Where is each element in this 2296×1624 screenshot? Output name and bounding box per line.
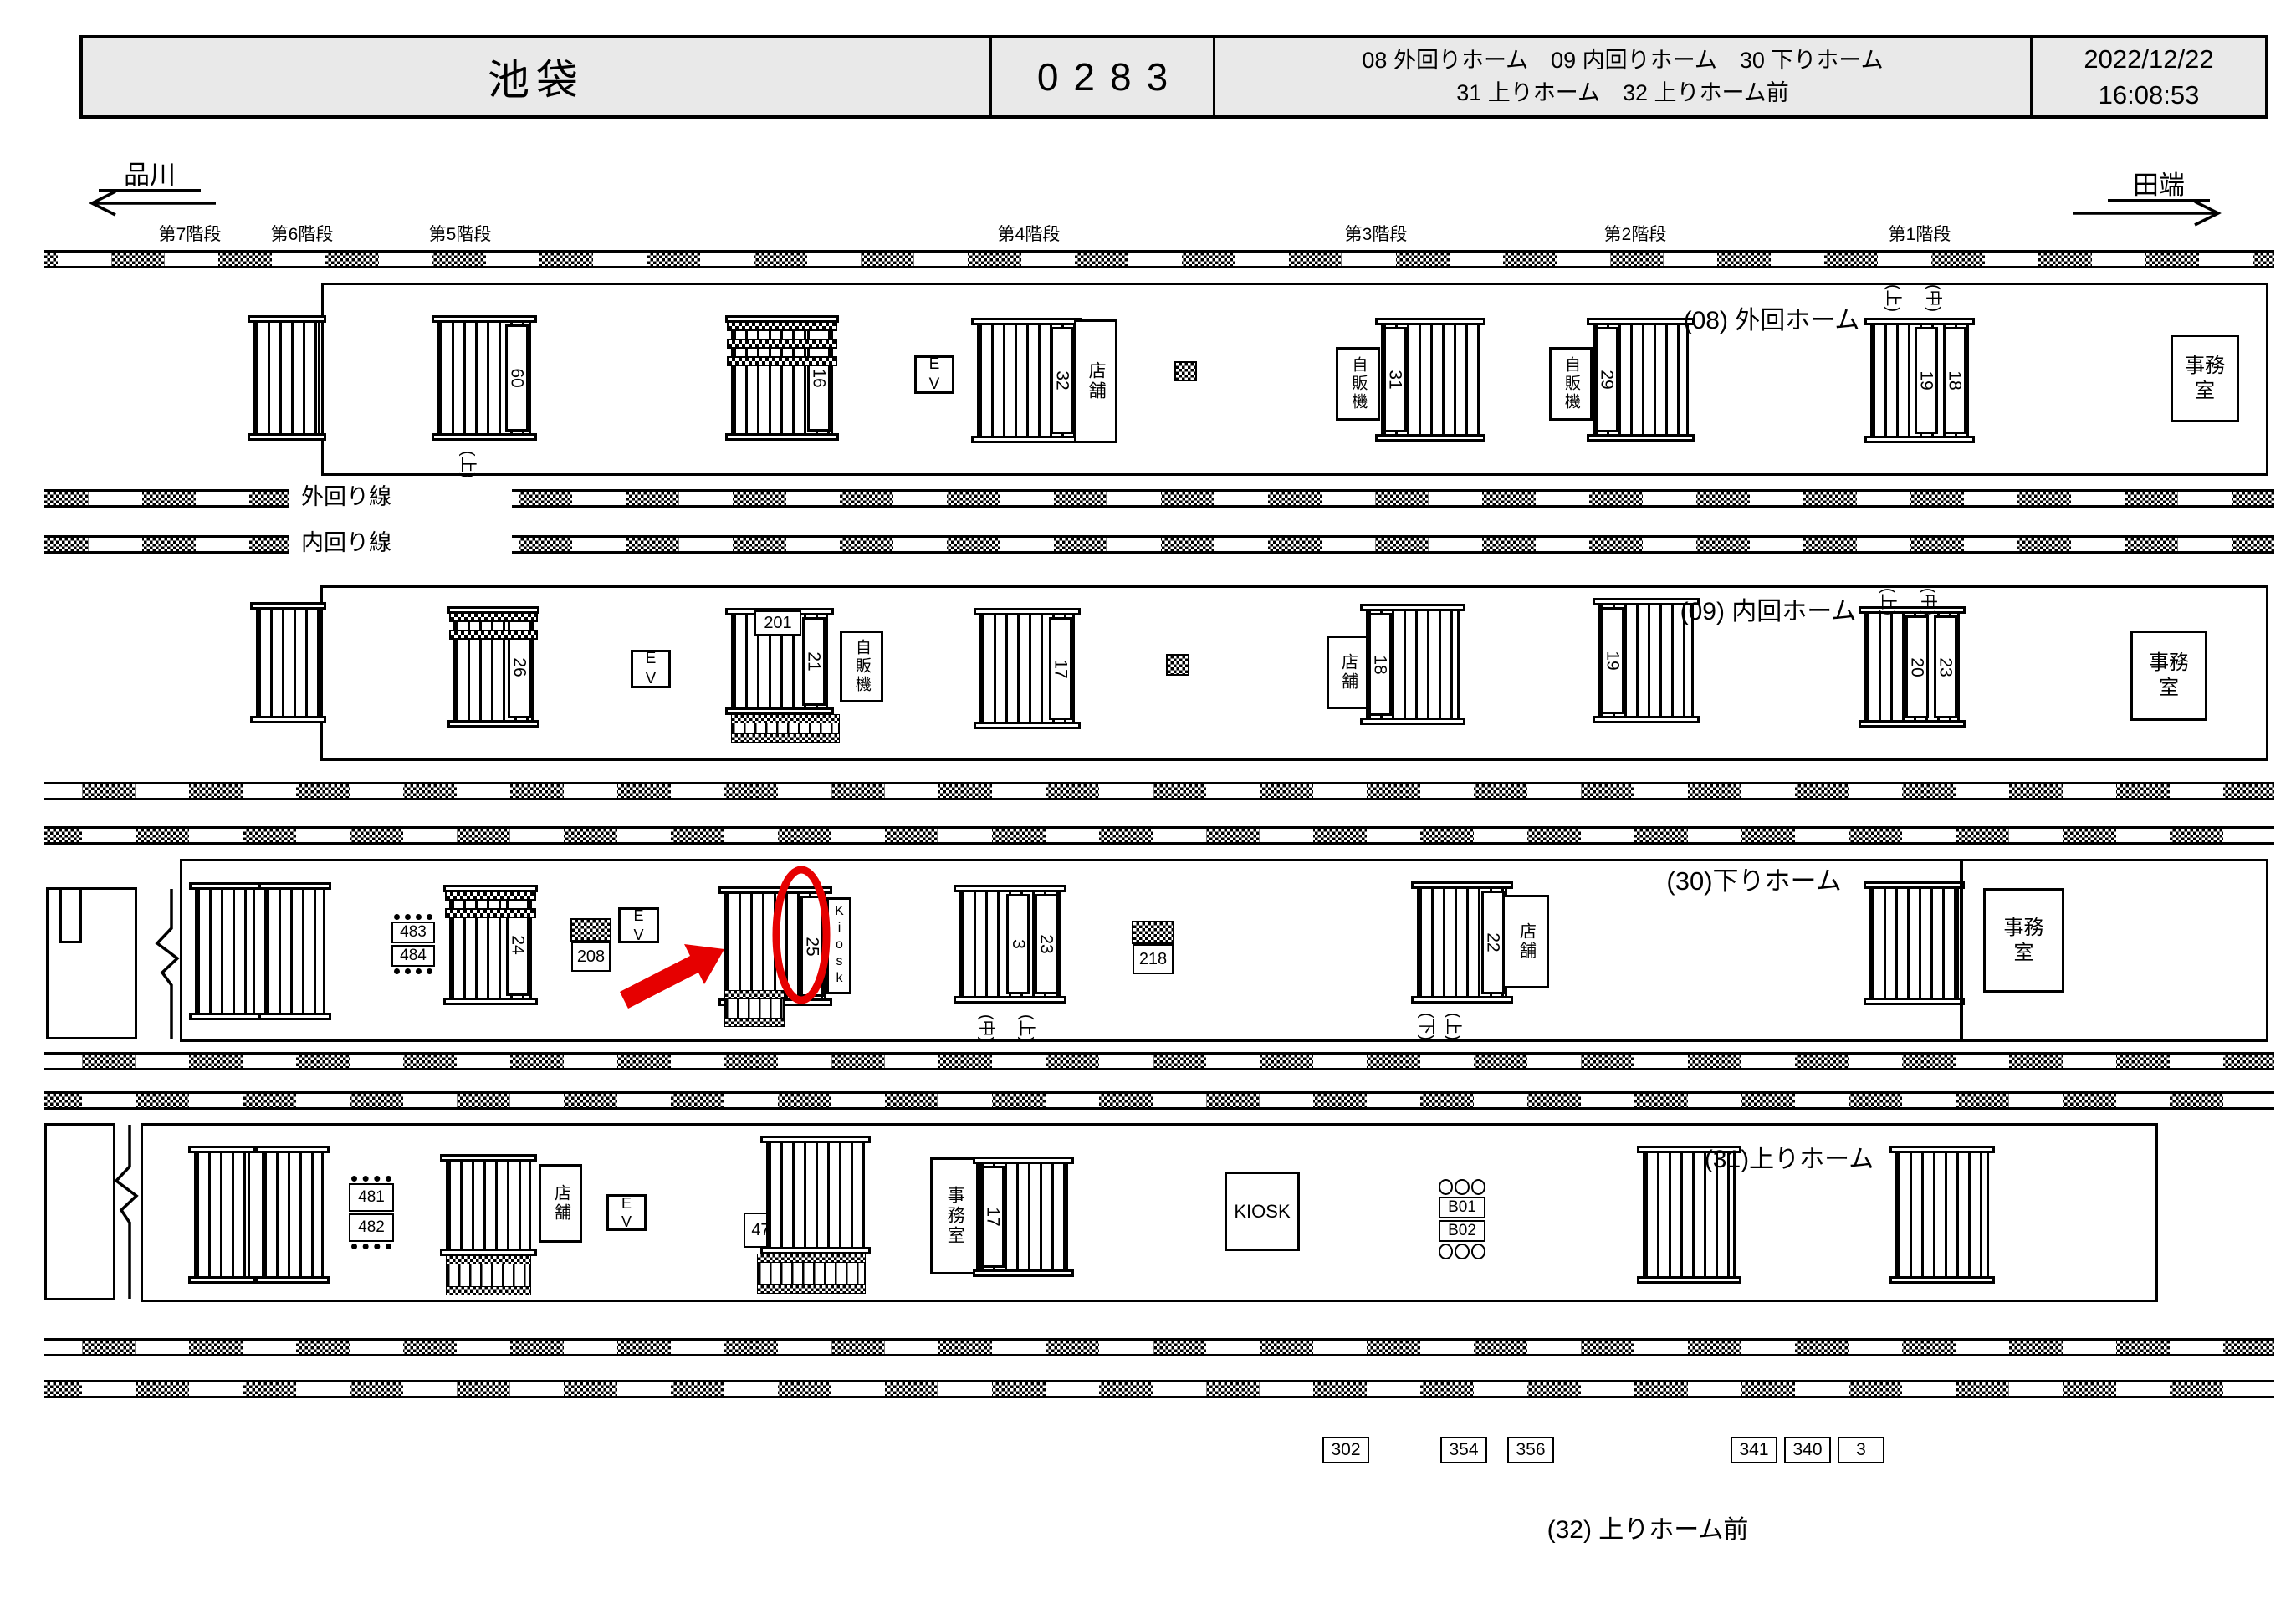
stair-number-lane: 23 — [1035, 894, 1058, 994]
escalator-up-tag: (上) — [1444, 1007, 1467, 1045]
stair-number-lane: 60 — [505, 324, 529, 432]
escalator-mid-tag: (中) — [1919, 583, 1942, 620]
track-segment — [44, 489, 289, 508]
staircase — [195, 882, 255, 1020]
staircase — [1895, 1146, 1989, 1284]
stair-number-lane: 19 — [1915, 327, 1938, 434]
escalator-up-tag: (上) — [1017, 1009, 1041, 1047]
stair-18: 18 — [1366, 604, 1460, 725]
direction-tabata: 田端 — [2108, 164, 2210, 202]
office: 事務室 — [2130, 631, 2207, 721]
direction-arrow-head — [92, 192, 115, 215]
rotated-tag-text: (下) — [1417, 1012, 1441, 1039]
escalator-dots — [757, 1254, 866, 1293]
track-segment — [44, 782, 2274, 800]
platform-09-label: (09) 内回ホーム — [1673, 590, 1864, 620]
escalator-strip — [445, 891, 536, 901]
stair-number: 18 — [1370, 655, 1390, 674]
stair-number-lane: 29 — [1595, 327, 1618, 432]
stair-number: 24 — [508, 935, 528, 954]
station-code: 0283 — [992, 38, 1215, 115]
station-name: 池袋 — [83, 38, 992, 115]
section-divider — [1960, 859, 1963, 1042]
track-line-label: 内回り線 — [301, 524, 427, 553]
track-segment — [512, 535, 2274, 554]
rotated-tag-text: (上) — [458, 450, 483, 477]
platform-31-label: (31)上りホーム — [1698, 1138, 1880, 1168]
scallop-dots — [394, 914, 432, 920]
stair-60: 60 — [437, 315, 531, 441]
stair-number: 31 — [1385, 370, 1405, 389]
stair-number-lane: 21 — [802, 617, 826, 706]
stair-3-23: 323 — [959, 885, 1061, 1004]
hatch-block — [570, 918, 611, 942]
platform-31-annex — [44, 1123, 115, 1300]
stair-number: 26 — [509, 657, 529, 677]
stair-number: 60 — [507, 368, 527, 387]
stair-22: 22 — [1417, 881, 1507, 1004]
stair-17: 17 — [979, 1157, 1068, 1277]
badge-number: 208 — [571, 942, 611, 972]
staircase — [264, 882, 325, 1020]
stair-number: 3 — [1008, 939, 1028, 949]
shop: 店舗 — [539, 1164, 582, 1243]
elevator: EV — [914, 355, 954, 394]
platform-break-zigzag — [116, 1125, 136, 1299]
shop: 店舗 — [1327, 636, 1368, 709]
time-value: 16:08:53 — [2099, 77, 2200, 113]
platform-32-label: (32) 上りホーム前 — [1531, 1509, 1765, 1539]
track-segment — [44, 1091, 2274, 1110]
scallop-dots — [351, 1176, 391, 1182]
escalator-dots — [724, 991, 785, 1026]
stair-number-lane: 22 — [1481, 891, 1505, 994]
stair-number-lane: 23 — [1934, 615, 1957, 718]
stair-number: 29 — [1597, 370, 1617, 389]
stair-number: 25 — [802, 937, 822, 956]
track-segment — [44, 1338, 2274, 1356]
stair-number-lane: 17 — [981, 1166, 1005, 1268]
stair-column-label: 第5階段 — [401, 221, 519, 246]
stair-number-lane: 32 — [1051, 327, 1074, 434]
escalator-strip — [727, 356, 837, 366]
escalator-strip — [445, 908, 536, 918]
escalator-up-tag: (上) — [458, 445, 482, 483]
escalator-dots — [731, 715, 840, 742]
staircase — [253, 315, 320, 441]
staircase — [446, 1154, 531, 1256]
rotated-tag-text: (上) — [1879, 587, 1903, 615]
stair-25: 25 — [724, 886, 826, 1006]
escalator-up-tag: (上) — [1879, 583, 1902, 620]
stair-26: 26 — [453, 606, 534, 728]
stair-32: 32 — [977, 318, 1076, 443]
track-segment — [512, 489, 2274, 508]
hatch-block — [1132, 921, 1174, 944]
scallop-circles — [1439, 1244, 1485, 1259]
stair-column-label: 第3階段 — [1317, 221, 1434, 246]
stair-number-lane: 19 — [1601, 607, 1624, 714]
date-value: 2022/12/22 — [2084, 41, 2213, 77]
badge-208: 208 — [570, 918, 611, 972]
datetime: 2022/12/22 16:08:53 — [2033, 38, 2265, 115]
platform-break-zigzag — [157, 889, 177, 1039]
stair-number: 22 — [1483, 932, 1503, 952]
escalator-dots — [446, 1256, 531, 1295]
hatch-square — [1174, 361, 1197, 381]
badge-483-484: 483484 — [391, 916, 435, 973]
stair-number: 19 — [1603, 651, 1623, 670]
stair-number-lane: 3 — [1006, 894, 1030, 994]
staircase — [262, 1146, 324, 1284]
rotated-tag-text: (中) — [1919, 587, 1943, 615]
rotated-tag-text: (中) — [977, 1014, 1001, 1041]
stair-column-label: 第7階段 — [131, 221, 248, 246]
track-number-badge: 340 — [1784, 1437, 1831, 1463]
stair-29: 29 — [1593, 318, 1689, 442]
badge-cell: B02 — [1439, 1220, 1485, 1242]
escalator-strip — [727, 339, 837, 349]
stair-number-lane: 25 — [800, 896, 824, 997]
track-number-badge: 302 — [1322, 1437, 1369, 1463]
office: 事務室 — [2171, 335, 2239, 422]
kiosk: Kiosk — [826, 897, 851, 994]
track-number-badge: 356 — [1507, 1437, 1554, 1463]
stair-number: 17 — [1051, 659, 1071, 678]
stair-number: 32 — [1052, 370, 1072, 390]
track-segment — [44, 535, 289, 554]
stair-24: 24 — [449, 885, 532, 1005]
stair-column-label: 第6階段 — [243, 221, 361, 246]
elevator: EV — [631, 650, 671, 688]
platform-index: 08 外回りホーム 09 内回りホーム 30 下りホーム 31 上りホーム 32… — [1215, 38, 2033, 115]
escalator-strip — [449, 612, 538, 622]
track-segment — [44, 1052, 2274, 1070]
platform-index-line1: 08 外回りホーム 09 内回りホーム 30 下りホーム — [1362, 44, 1883, 77]
scallop-dots — [394, 968, 432, 974]
kiosk: KIOSK — [1225, 1172, 1300, 1251]
scallop-dots — [351, 1244, 391, 1249]
stair-20-23: 2023 — [1864, 606, 1960, 728]
rotated-tag-text: (中) — [1924, 283, 1948, 311]
stair-17: 17 — [979, 608, 1075, 729]
stair-number: 20 — [1907, 657, 1927, 677]
badge-cell: 482 — [349, 1213, 394, 1242]
hatch-square — [1166, 654, 1189, 676]
shop: 店舗 — [1502, 895, 1549, 988]
staircase — [766, 1136, 865, 1254]
badge-b01-b02: B01B02 — [1439, 1187, 1485, 1251]
escalator-mid-tag: (中) — [977, 1009, 1000, 1047]
elevator: EV — [618, 907, 659, 943]
track-number-badge: 354 — [1440, 1437, 1487, 1463]
track-number-badge: 341 — [1731, 1437, 1777, 1463]
badge-number: 218 — [1133, 944, 1174, 974]
direction-shinagawa: 品川 — [99, 154, 201, 192]
badge-cell: 484 — [391, 945, 435, 967]
stair-number-lane: 31 — [1383, 327, 1407, 432]
rotated-tag-text: (上) — [1884, 283, 1908, 311]
stair-number: 23 — [1935, 657, 1956, 677]
stair-number: 18 — [1945, 370, 1965, 390]
platform-08-label: (08) 外回ホーム — [1675, 299, 1869, 329]
track-segment — [44, 250, 2274, 268]
stair-number: 19 — [1916, 370, 1936, 390]
escalator-down-tag: (下) — [1417, 1007, 1440, 1045]
direction-arrow-head — [2195, 202, 2218, 225]
stair-number: 21 — [804, 651, 824, 671]
track-segment — [44, 826, 2274, 845]
vending-machine: 自販機 — [1336, 347, 1380, 421]
badge-cell: 481 — [349, 1183, 394, 1212]
escalator-up-tag: (上) — [1884, 279, 1907, 316]
stair-number-lane: 17 — [1049, 617, 1072, 720]
scallop-circles — [1439, 1179, 1485, 1195]
stair-31: 31 — [1381, 318, 1480, 442]
track-segment — [44, 1380, 2274, 1398]
stair-19-18: 1918 — [1870, 318, 1969, 443]
rotated-tag-text: (上) — [1444, 1012, 1468, 1039]
vending-machine: 自販機 — [840, 631, 883, 702]
platform-30-label: (30)下りホーム — [1660, 860, 1848, 891]
staircase — [194, 1146, 250, 1284]
vending-machine: 自販機 — [1549, 347, 1593, 421]
badge-cell: 483 — [391, 922, 435, 943]
platform-30-annex-tab — [59, 887, 82, 943]
badge-201: 201 — [754, 610, 801, 636]
stair-number-lane: 18 — [1943, 327, 1966, 434]
stair-number: 17 — [983, 1207, 1003, 1226]
shop: 店舗 — [1074, 319, 1117, 443]
badge-218: 218 — [1132, 921, 1174, 974]
elevator: EV — [606, 1194, 647, 1231]
stair-number: 16 — [809, 368, 829, 387]
office: 事務室 — [930, 1157, 979, 1274]
staircase — [1869, 881, 1959, 1005]
platform-09 — [320, 585, 2268, 761]
platform-08 — [321, 283, 2268, 476]
badge-cell: B01 — [1439, 1197, 1485, 1218]
escalator-mid-tag: (中) — [1924, 279, 1947, 316]
stair-column-label: 第2階段 — [1577, 221, 1694, 246]
stair-column-label: 第4階段 — [970, 221, 1087, 246]
escalator-strip — [727, 321, 837, 331]
platform-index-line2: 31 上りホーム 32 上りホーム前 — [1456, 77, 1788, 110]
stair-number-lane: 18 — [1368, 613, 1392, 716]
staircase — [256, 602, 320, 723]
stair-number-lane: 20 — [1905, 615, 1929, 718]
badge-481-482: 481482 — [349, 1176, 394, 1249]
stair-number: 23 — [1036, 934, 1056, 953]
track-line-label: 外回り線 — [301, 478, 427, 507]
station-facility-diagram: 池袋 0283 08 外回りホーム 09 内回りホーム 30 下りホーム 31 … — [0, 0, 2296, 1624]
header-bar: 池袋 0283 08 外回りホーム 09 内回りホーム 30 下りホーム 31 … — [79, 35, 2268, 119]
track-number-badge: 3 — [1838, 1437, 1884, 1463]
stair-column-label: 第1階段 — [1861, 221, 1978, 246]
stair-16: 16 — [731, 315, 833, 441]
rotated-tag-text: (上) — [1017, 1014, 1041, 1041]
office: 事務室 — [1983, 888, 2064, 993]
escalator-strip — [449, 630, 538, 640]
